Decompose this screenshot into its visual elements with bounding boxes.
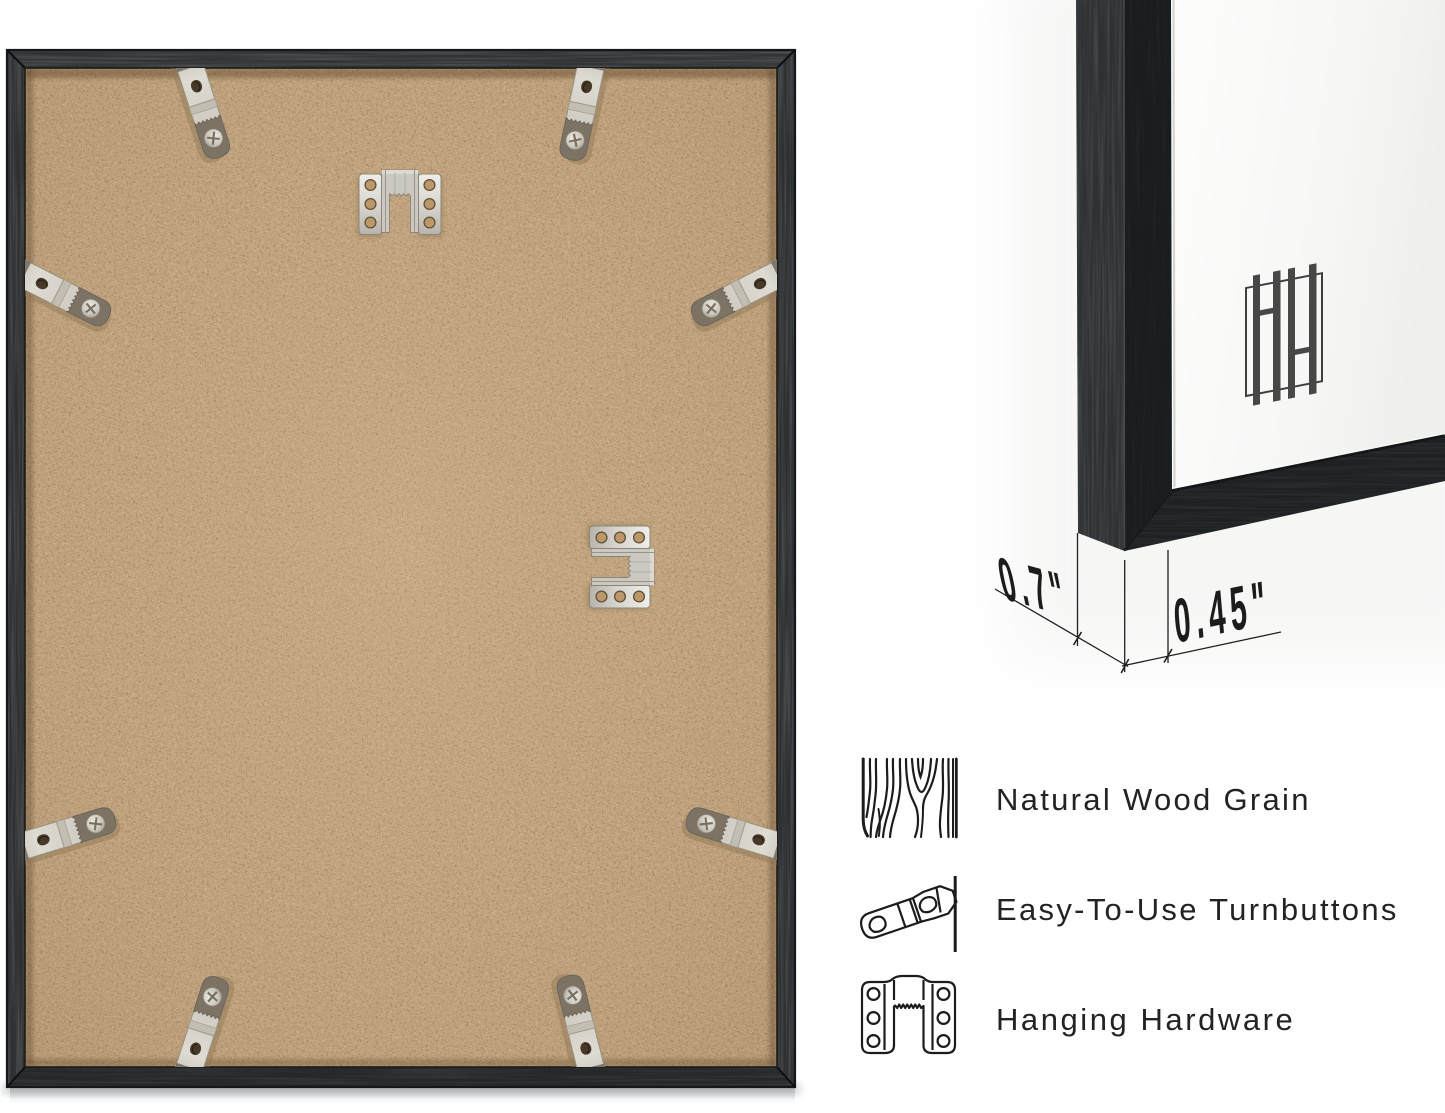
svg-text:Natural Wood Grain: Natural Wood Grain	[996, 782, 1311, 817]
svg-text:Easy-To-Use Turnbuttons: Easy-To-Use Turnbuttons	[996, 892, 1399, 927]
svg-text:Hanging Hardware: Hanging Hardware	[996, 1002, 1295, 1037]
